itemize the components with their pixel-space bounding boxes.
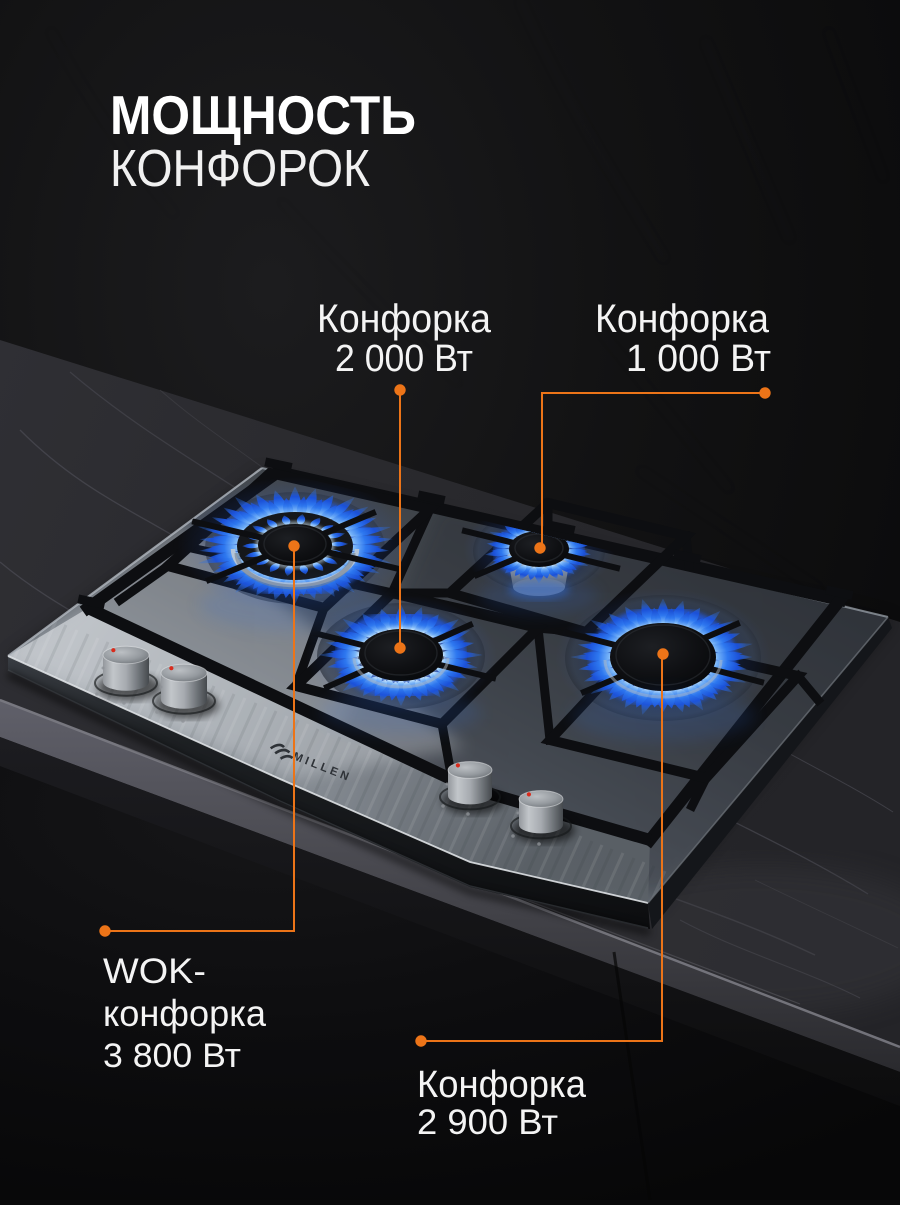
svg-text:КОНФОРОК: КОНФОРОК (110, 140, 370, 198)
svg-text:1 000 Вт: 1 000 Вт (626, 338, 771, 380)
svg-text:конфорка: конфорка (103, 993, 266, 1034)
svg-text:МОЩНОСТЬ: МОЩНОСТЬ (110, 84, 416, 146)
svg-text:Конфорка: Конфорка (317, 297, 492, 341)
svg-text:3 800 Вт: 3 800 Вт (103, 1037, 241, 1075)
svg-text:Конфорка: Конфорка (417, 1064, 587, 1106)
svg-text:Конфорка: Конфорка (595, 297, 770, 341)
svg-text:2 000 Вт: 2 000 Вт (335, 338, 473, 380)
svg-text:2 900 Вт: 2 900 Вт (417, 1103, 558, 1142)
svg-text:WOK-: WOK- (103, 952, 206, 991)
